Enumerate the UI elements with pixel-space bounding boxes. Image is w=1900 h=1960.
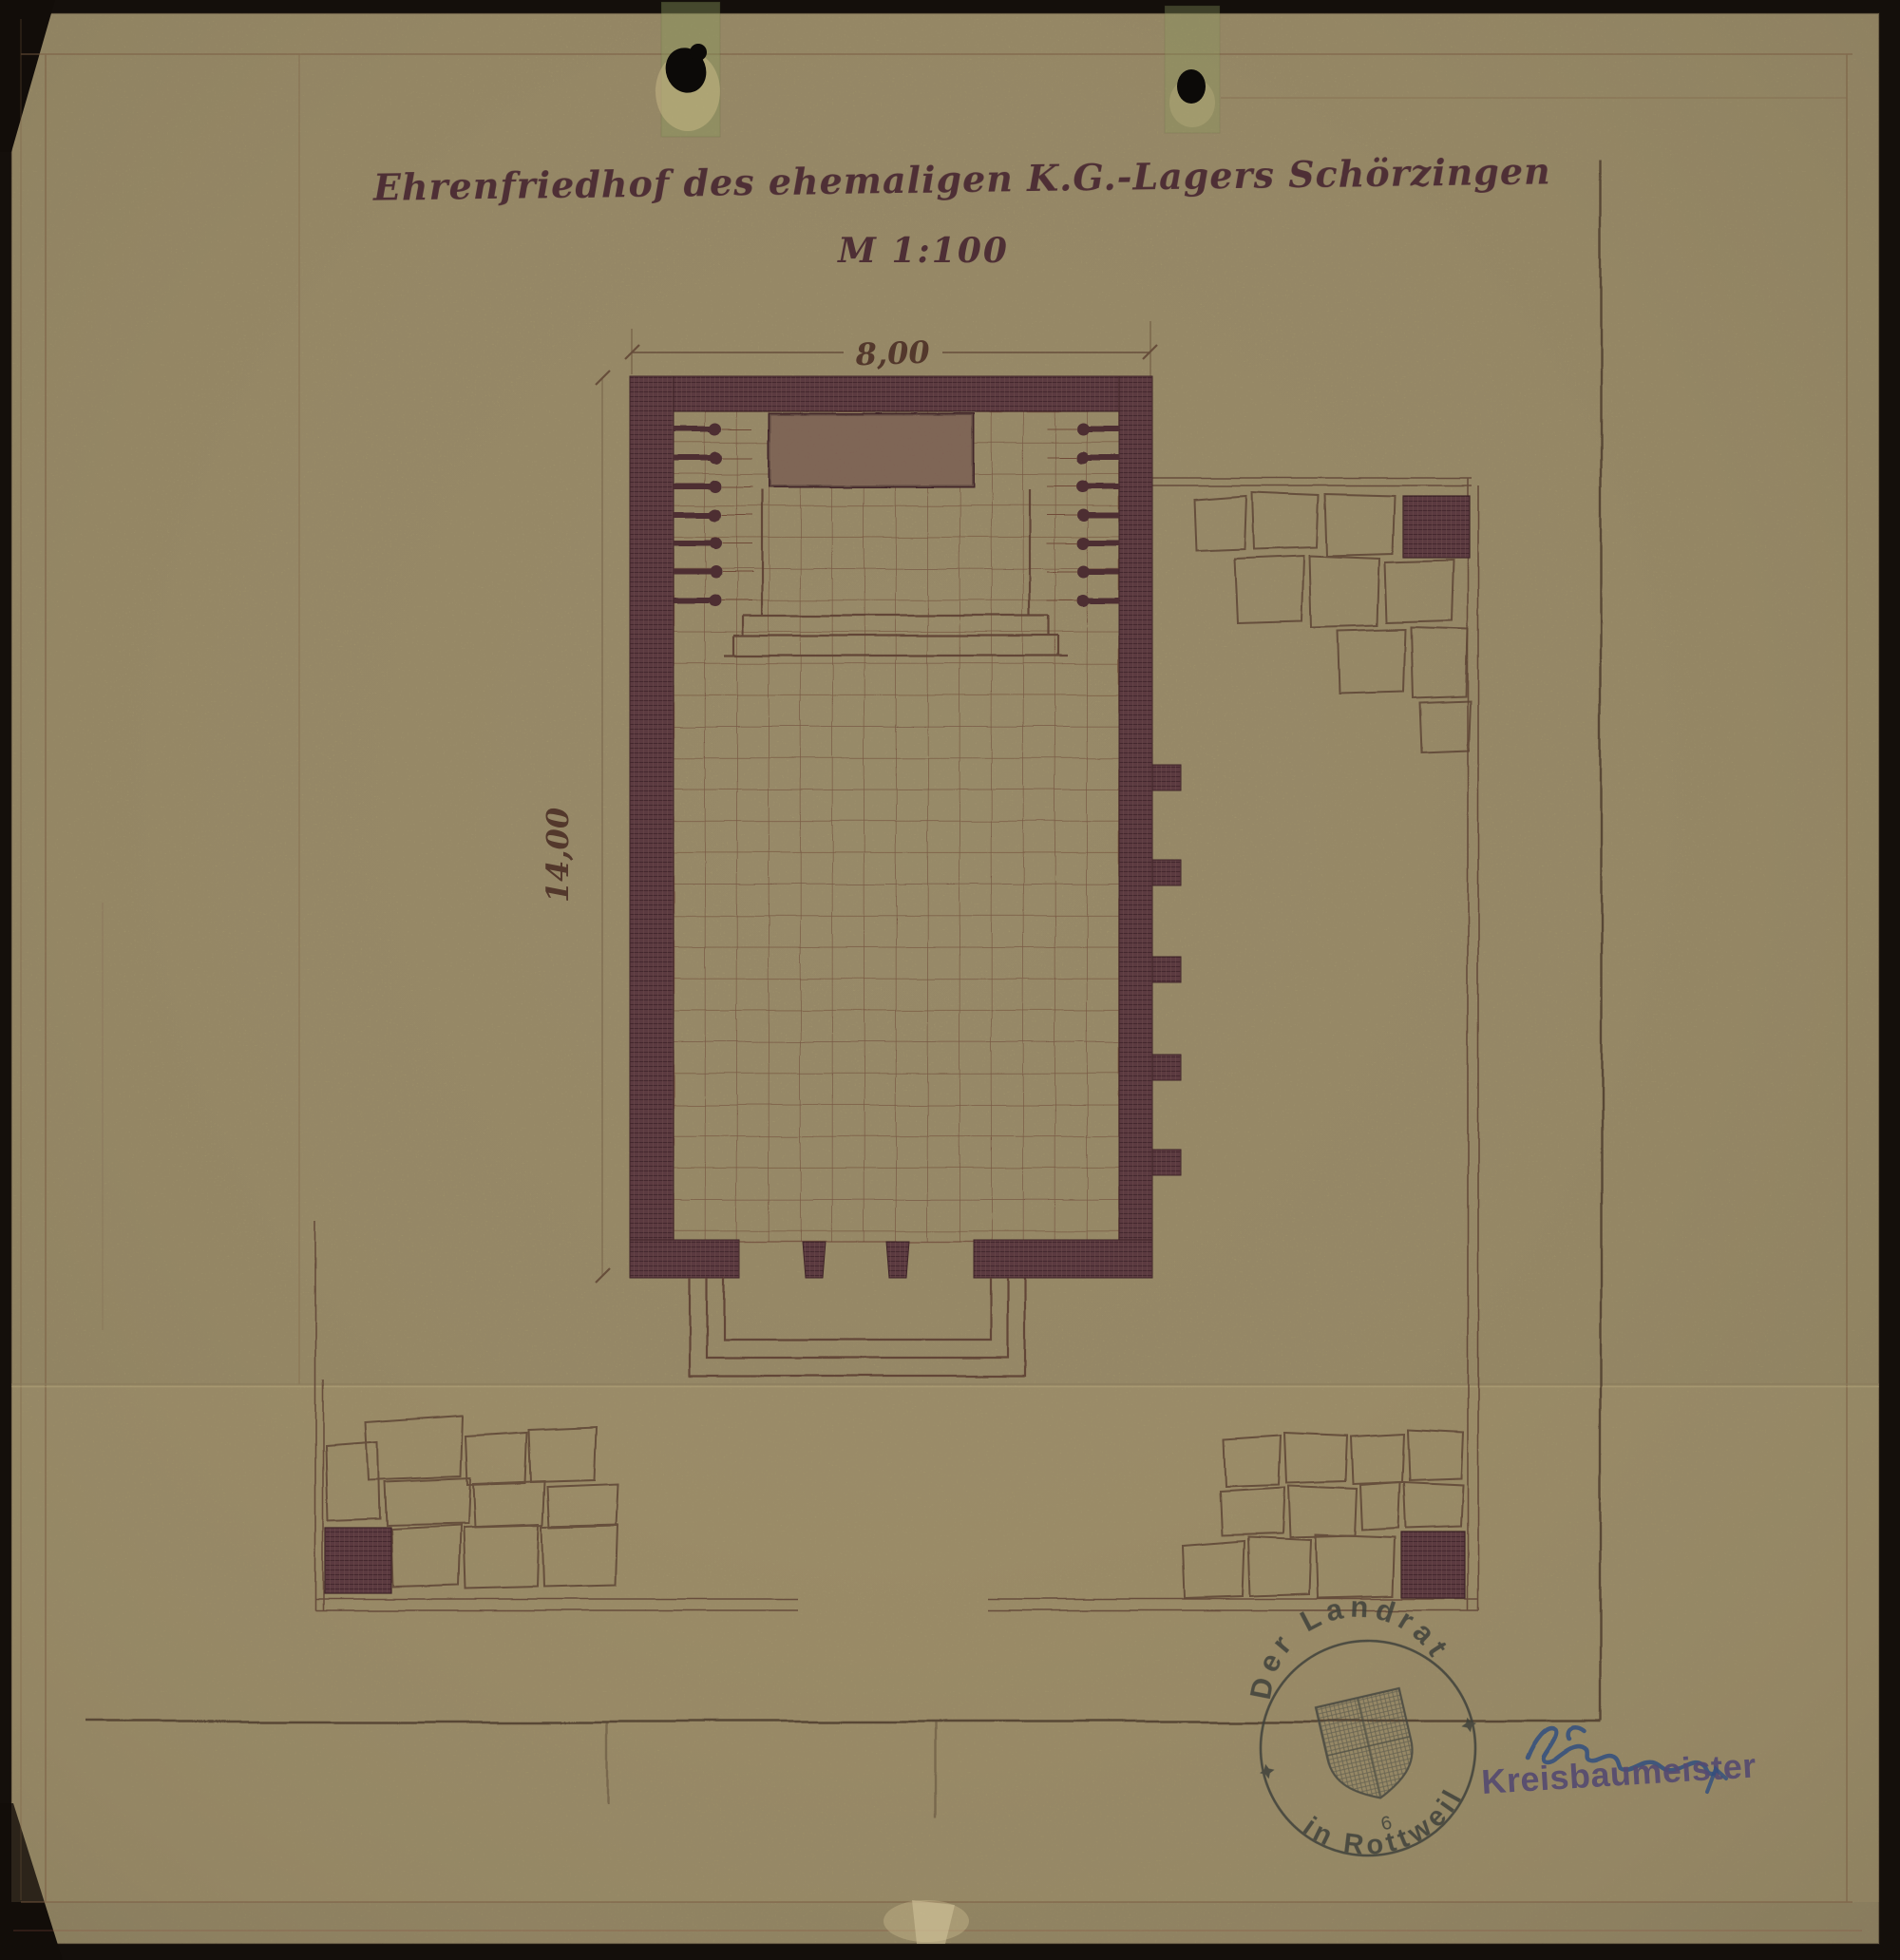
scanned-sheet: Ehrenfriedhof des ehemaligen K.G.-Lagers… [0, 0, 1900, 1960]
dimension-height-label: 14,00 [540, 808, 576, 903]
cemetery-enclosure [630, 376, 1181, 1376]
gate-pier [803, 1242, 826, 1278]
dimension-width-label: 8,00 [854, 334, 930, 373]
site-plan-drawing: Ehrenfriedhof des ehemaligen K.G.-Lagers… [0, 0, 1900, 1960]
gate-pier [886, 1242, 909, 1278]
grave-grid [674, 411, 1119, 1242]
memorial-bed [769, 414, 973, 486]
drawing-scale: M 1:100 [836, 231, 1009, 271]
